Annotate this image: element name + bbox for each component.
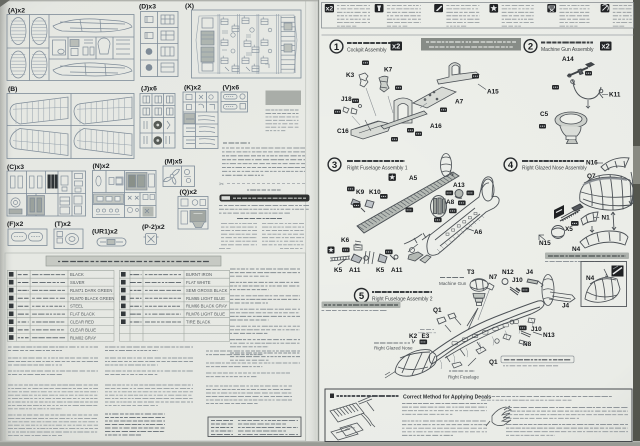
svg-text:(UR1)x2: (UR1)x2 — [92, 229, 118, 236]
svg-text:C16: C16 — [337, 128, 349, 135]
svg-text:1: 1 — [334, 42, 340, 53]
svg-text:A16: A16 — [430, 123, 442, 130]
svg-text:SEMI GROSS BLACK: SEMI GROSS BLACK — [186, 288, 228, 293]
svg-text:STEEL: STEEL — [70, 304, 84, 309]
svg-text:Cockpit Assembly: Cockpit Assembly — [347, 48, 387, 54]
svg-text:K9: K9 — [356, 189, 365, 196]
svg-text:x2: x2 — [602, 42, 610, 51]
svg-text:K6: K6 — [341, 237, 350, 244]
svg-text:C5: C5 — [540, 111, 549, 118]
svg-text:RLM70 BLACK GREEN: RLM70 BLACK GREEN — [70, 296, 114, 301]
svg-text:BURNT IRON: BURNT IRON — [186, 272, 212, 277]
svg-text:J4: J4 — [562, 303, 570, 310]
svg-text:Q1: Q1 — [489, 359, 498, 366]
svg-text:Right Fuselage Assembly 1: Right Fuselage Assembly 1 — [347, 166, 408, 172]
svg-text:FLAT WHITE: FLAT WHITE — [186, 280, 211, 285]
svg-text:(F)x2: (F)x2 — [7, 221, 23, 228]
svg-text:CLEAR RED: CLEAR RED — [70, 320, 94, 325]
svg-text:K5: K5 — [376, 267, 385, 274]
svg-text:(J)x6: (J)x6 — [141, 86, 157, 93]
svg-text:N16: N16 — [586, 160, 598, 167]
svg-text:RLM66 BLACK GRAY: RLM66 BLACK GRAY — [186, 304, 227, 309]
svg-text:N12: N12 — [502, 269, 514, 276]
svg-text:N4: N4 — [586, 275, 595, 282]
svg-text:(Q)x2: (Q)x2 — [180, 189, 198, 196]
svg-text:(D)x3: (D)x3 — [139, 4, 156, 11]
svg-text:x2: x2 — [326, 6, 334, 13]
svg-text:(M)x5: (M)x5 — [165, 159, 183, 166]
svg-text:RLM65 LIGHT BLUE: RLM65 LIGHT BLUE — [186, 296, 225, 301]
svg-text:x2: x2 — [392, 42, 400, 51]
svg-text:(C)x3: (C)x3 — [7, 164, 24, 171]
svg-text:A15: A15 — [487, 89, 499, 96]
svg-text:RLM02 GRAY: RLM02 GRAY — [70, 335, 96, 340]
svg-text:5: 5 — [359, 291, 365, 302]
svg-text:FLAT BLACK: FLAT BLACK — [70, 312, 95, 317]
svg-text:RLM71 DARK GREEN: RLM71 DARK GREEN — [70, 288, 112, 293]
svg-text:K2: K2 — [409, 333, 418, 340]
svg-text:(X): (X) — [185, 3, 194, 10]
svg-text:(A)x2: (A)x2 — [8, 8, 25, 15]
svg-text:N13: N13 — [543, 332, 555, 339]
svg-text:A11: A11 — [349, 267, 361, 274]
svg-text:3: 3 — [332, 160, 337, 171]
svg-text:Machine Gun Assembly: Machine Gun Assembly — [541, 47, 594, 53]
svg-text:Q1: Q1 — [433, 307, 442, 314]
svg-text:Machine Gun: Machine Gun — [439, 281, 467, 286]
svg-text:(K)x2: (K)x2 — [184, 85, 201, 92]
svg-text:RLM76 LIGHT BLUE: RLM76 LIGHT BLUE — [186, 312, 225, 317]
svg-text:J10: J10 — [512, 277, 523, 284]
svg-text:T3: T3 — [467, 269, 475, 276]
svg-text:Right Glazed Nose Assembly: Right Glazed Nose Assembly — [522, 166, 587, 172]
svg-text:N4: N4 — [572, 246, 581, 253]
svg-text:J18: J18 — [341, 96, 352, 103]
svg-text:N1: N1 — [602, 215, 611, 222]
svg-text:(N)x2: (N)x2 — [93, 163, 110, 170]
svg-text:CLEAR BLUE: CLEAR BLUE — [70, 327, 96, 332]
svg-text:K3: K3 — [346, 72, 355, 79]
svg-text:(P-2)x2: (P-2)x2 — [142, 224, 165, 231]
svg-text:K11: K11 — [609, 92, 621, 99]
svg-text:(B): (B) — [8, 86, 17, 93]
svg-text:A6: A6 — [474, 229, 483, 236]
svg-text:A8: A8 — [446, 199, 455, 206]
svg-text:4: 4 — [508, 160, 514, 171]
svg-text:(V)x6: (V)x6 — [223, 85, 240, 92]
svg-text:N7: N7 — [489, 274, 498, 281]
svg-text:Right Fuselage: Right Fuselage — [448, 375, 479, 380]
svg-text:(T)x2: (T)x2 — [55, 221, 71, 228]
svg-text:N15: N15 — [539, 240, 551, 247]
svg-text:Correct Method for Applying De: Correct Method for Applying Decals — [403, 395, 491, 401]
svg-text:K10: K10 — [369, 189, 381, 196]
svg-text:J4: J4 — [526, 269, 534, 276]
svg-text:E3: E3 — [422, 333, 430, 340]
svg-text:K7: K7 — [384, 67, 393, 74]
svg-text:J10: J10 — [531, 326, 542, 333]
svg-text:BLACK: BLACK — [70, 272, 84, 277]
svg-text:✂: ✂ — [219, 182, 224, 188]
svg-text:A14: A14 — [562, 56, 574, 63]
svg-text:A13: A13 — [453, 182, 465, 189]
svg-text:X5: X5 — [565, 226, 573, 233]
svg-text:A5: A5 — [409, 175, 418, 182]
svg-text:2: 2 — [528, 41, 533, 52]
svg-text:K5: K5 — [334, 267, 343, 274]
svg-text:A11: A11 — [391, 267, 403, 274]
svg-text:SILVER: SILVER — [70, 280, 85, 285]
svg-text:A7: A7 — [455, 99, 464, 106]
svg-text:TIRE BLACK: TIRE BLACK — [186, 320, 211, 325]
svg-text:Right Glazed Nose: Right Glazed Nose — [374, 346, 413, 351]
